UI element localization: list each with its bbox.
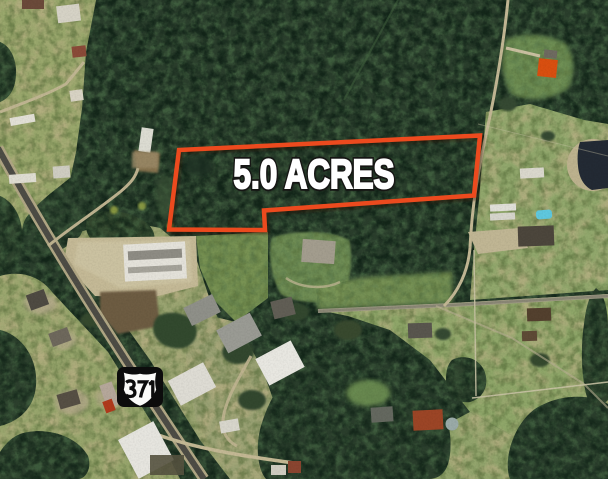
svg-text:5.0 ACRES: 5.0 ACRES — [234, 151, 395, 197]
